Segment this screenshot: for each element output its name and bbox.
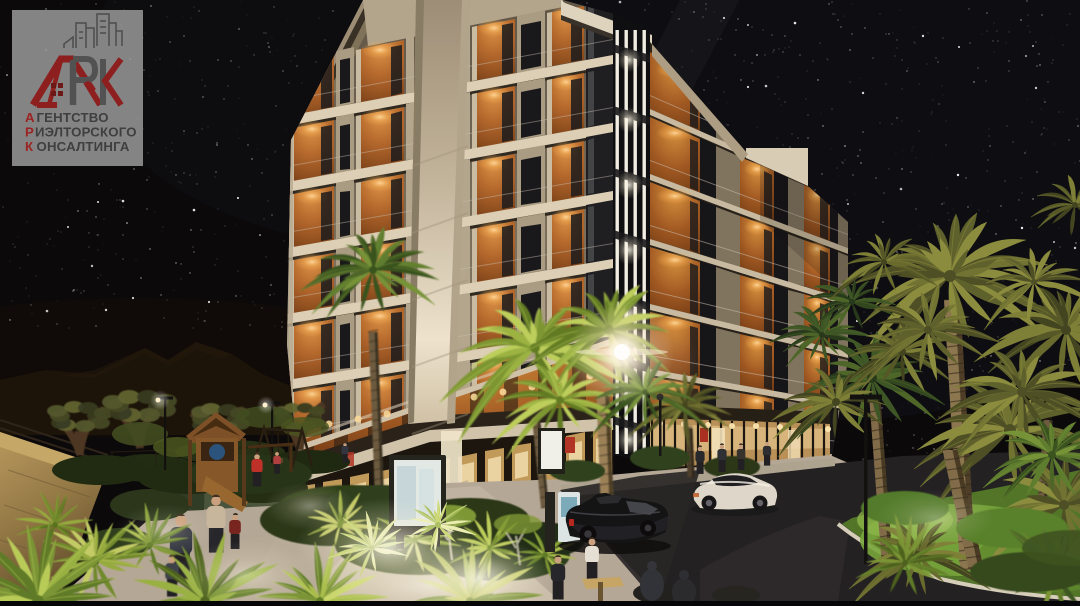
svg-text:А: А xyxy=(25,110,35,125)
svg-text:ОНСАЛТИНГА: ОНСАЛТИНГА xyxy=(37,139,130,154)
svg-text:ГЕНТСТВО: ГЕНТСТВО xyxy=(37,110,109,125)
svg-text:Р: Р xyxy=(25,125,34,140)
svg-text:К: К xyxy=(25,139,34,154)
svg-text:ИЭЛТОРСКОГО: ИЭЛТОРСКОГО xyxy=(35,125,137,140)
